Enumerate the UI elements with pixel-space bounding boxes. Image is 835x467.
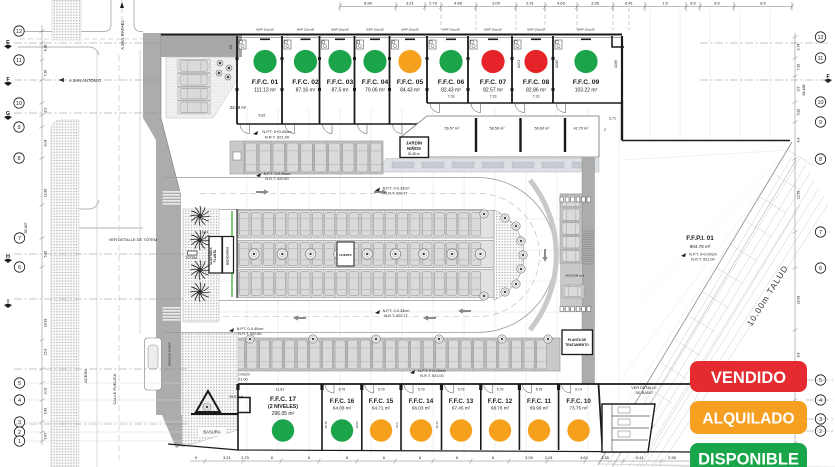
svg-text:F.F.C. 14: F.F.C. 14: [409, 398, 434, 405]
svg-text:15.3: 15.3: [44, 349, 48, 356]
svg-text:BAP 10cmØ: BAP 10cmØ: [485, 28, 503, 32]
svg-text:103.22 m²: 103.22 m²: [575, 88, 598, 94]
svg-text:N.P.T. 0-0.40cm: N.P.T. 0-0.40cm: [264, 172, 291, 176]
svg-text:111.13 m²: 111.13 m²: [254, 88, 276, 94]
svg-text:9: 9: [17, 125, 20, 131]
svg-text:3.21: 3.21: [406, 1, 415, 6]
svg-text:3.5: 3.5: [229, 45, 233, 50]
svg-text:5: 5: [819, 378, 822, 384]
svg-text:11: 11: [16, 58, 22, 64]
svg-text:73.75 m²: 73.75 m²: [570, 406, 589, 411]
svg-text:2.79: 2.79: [241, 455, 250, 460]
svg-text:10.91: 10.91: [517, 60, 521, 68]
svg-text:3.74: 3.74: [797, 44, 801, 51]
svg-text:N.R.T. 921.00: N.R.T. 921.00: [420, 374, 443, 378]
svg-text:DISPONIBLE: DISPONIBLE: [698, 451, 799, 467]
svg-text:VER DETALLE: VER DETALLE: [631, 386, 657, 390]
svg-text:6.04: 6.04: [44, 140, 48, 147]
svg-text:N.R.T. 921.00: N.R.T. 921.00: [265, 135, 290, 140]
svg-text:F.F.C. 09: F.F.C. 09: [573, 79, 600, 86]
svg-text:5.79: 5.79: [418, 388, 425, 392]
svg-text:10.78: 10.78: [324, 421, 328, 429]
svg-text:58.56 m²: 58.56 m²: [490, 127, 506, 131]
svg-text:F.F.C. 16: F.F.C. 16: [330, 398, 355, 405]
svg-text:79.06 m²: 79.06 m²: [365, 88, 385, 94]
svg-text:12.89: 12.89: [44, 189, 48, 198]
svg-text:1: 1: [18, 439, 21, 445]
svg-text:JARDÍN: JARDÍN: [406, 141, 422, 146]
svg-text:3.35: 3.35: [591, 1, 600, 6]
svg-text:(2 NIVELES): (2 NIVELES): [268, 404, 298, 410]
svg-text:11.33: 11.33: [435, 421, 439, 429]
svg-text:4.48: 4.48: [454, 1, 463, 6]
svg-text:7.26: 7.26: [44, 70, 48, 77]
svg-text:7.33: 7.33: [490, 95, 497, 99]
svg-text:BAP 10cmØ: BAP 10cmØ: [578, 28, 596, 32]
svg-text:BAP 10cmØ: BAP 10cmØ: [332, 28, 350, 32]
svg-text:F.F.C. 13: F.F.C. 13: [449, 398, 474, 405]
svg-text:3.09: 3.09: [525, 455, 534, 460]
svg-text:64.71 m²: 64.71 m²: [372, 406, 391, 411]
svg-text:2.91: 2.91: [545, 455, 554, 460]
svg-text:BAP 10cmØ: BAP 10cmØ: [367, 28, 385, 32]
svg-text:2: 2: [819, 429, 822, 435]
svg-text:6: 6: [819, 266, 822, 272]
svg-text:68.188: 68.188: [802, 85, 806, 96]
svg-text:N.P.T. 0-0.33cm: N.P.T. 0-0.33cm: [383, 187, 410, 191]
svg-text:7.26: 7.26: [797, 64, 801, 71]
svg-text:2: 2: [604, 128, 606, 132]
svg-text:F.F.C. 08: F.F.C. 08: [523, 79, 550, 86]
svg-text:N.R.T. 920.77: N.R.T. 920.77: [384, 314, 407, 318]
svg-text:BAP 10cmØ: BAP 10cmØ: [402, 28, 420, 32]
svg-text:42.70 m²: 42.70 m²: [574, 127, 590, 131]
svg-text:3.71: 3.71: [609, 117, 616, 121]
svg-text:6.41: 6.41: [625, 1, 634, 6]
svg-text:66.03 m²: 66.03 m²: [412, 406, 431, 411]
svg-text:58.387: 58.387: [24, 223, 28, 234]
svg-text:87.16 m²: 87.16 m²: [296, 88, 316, 94]
svg-text:1.5: 1.5: [662, 1, 668, 6]
svg-text:7.33: 7.33: [448, 95, 455, 99]
svg-text:6.8: 6.8: [797, 353, 801, 358]
svg-text:3.43: 3.43: [44, 408, 48, 415]
svg-text:F.F.C. 02: F.F.C. 02: [292, 79, 319, 86]
svg-text:VENDIDO: VENDIDO: [711, 369, 786, 387]
svg-text:82.57 m²: 82.57 m²: [483, 88, 503, 94]
svg-text:6.4: 6.4: [797, 138, 801, 143]
svg-text:F.F.C. 06: F.F.C. 06: [438, 79, 465, 86]
svg-text:BAP 10cmØ: BAP 10cmØ: [257, 28, 275, 32]
svg-text:F.F.C. 05: F.F.C. 05: [397, 79, 424, 86]
svg-text:64.08 m²: 64.08 m²: [333, 406, 352, 411]
svg-text:6.14: 6.14: [575, 388, 582, 392]
svg-text:TRATAMIENTO: TRATAMIENTO: [565, 343, 589, 347]
svg-text:N.R.T. 920.60: N.R.T. 920.60: [265, 177, 288, 181]
svg-text:5.79: 5.79: [536, 388, 543, 392]
svg-text:2: 2: [18, 430, 21, 436]
svg-text:8.96: 8.96: [364, 1, 373, 6]
svg-text:2.91: 2.91: [526, 1, 535, 6]
svg-text:ACERA: ACERA: [83, 369, 88, 383]
svg-text:82.43 m²: 82.43 m²: [441, 88, 461, 94]
svg-text:NIÑOS: NIÑOS: [407, 146, 421, 151]
svg-text:F.F.C. 12: F.F.C. 12: [488, 398, 513, 405]
svg-text:3: 3: [819, 417, 822, 423]
svg-text:N.P.T. 0-0.40cm: N.P.T. 0-0.40cm: [237, 327, 264, 331]
svg-text:8: 8: [819, 157, 822, 163]
svg-text:2.35: 2.35: [668, 455, 677, 460]
svg-text:BAP 10cmØ: BAP 10cmØ: [297, 28, 315, 32]
svg-text:5: 5: [18, 381, 21, 387]
svg-text:30.48 m²: 30.48 m²: [408, 152, 421, 156]
svg-text:56.60 m²: 56.60 m²: [535, 127, 551, 131]
svg-text:MEDIDORES: MEDIDORES: [226, 247, 230, 265]
svg-text:4: 4: [18, 398, 21, 404]
svg-text:PLANTA: PLANTA: [213, 249, 217, 262]
svg-text:N.P.T. 0-0.33cm: N.P.T. 0-0.33cm: [383, 309, 410, 313]
svg-text:8.5: 8.5: [690, 1, 696, 6]
svg-text:84.43 m²: 84.43 m²: [400, 88, 420, 94]
svg-text:3.09: 3.09: [492, 1, 501, 6]
svg-text:F.F.C. 04: F.F.C. 04: [362, 79, 389, 86]
svg-text:4: 4: [819, 398, 822, 404]
svg-text:68.78 m²: 68.78 m²: [491, 406, 510, 411]
svg-text:56.57 m²: 56.57 m²: [445, 127, 461, 131]
svg-text:5.81: 5.81: [259, 114, 266, 118]
svg-text:10: 10: [16, 101, 22, 107]
svg-text:3.35: 3.35: [601, 455, 610, 460]
svg-text:11: 11: [818, 56, 824, 62]
svg-text:11.81: 11.81: [276, 388, 284, 392]
svg-text:10.85: 10.85: [614, 60, 618, 68]
svg-text:F.F.C. 17: F.F.C. 17: [270, 396, 296, 403]
svg-text:2.79: 2.79: [429, 1, 438, 6]
svg-text:F.F.C. 10: F.F.C. 10: [566, 398, 591, 405]
svg-text:3.5: 3.5: [44, 108, 48, 113]
svg-text:N.P.T. 0+0.00cm: N.P.T. 0+0.00cm: [262, 129, 292, 134]
svg-text:89.99 m²: 89.99 m²: [530, 406, 549, 411]
svg-text:7: 7: [18, 236, 21, 242]
svg-text:10: 10: [817, 100, 823, 106]
svg-text:N.P.T. 0+0.00cm: N.P.T. 0+0.00cm: [418, 369, 446, 373]
svg-text:F.F.C. 01: F.F.C. 01: [252, 79, 279, 86]
svg-text:10.89: 10.89: [555, 60, 559, 68]
svg-text:5.82: 5.82: [797, 109, 801, 116]
svg-text:HUERTA: HUERTA: [339, 253, 352, 257]
svg-text:F.F.C. 03: F.F.C. 03: [327, 79, 354, 86]
svg-text:F.F.C. 11: F.F.C. 11: [527, 398, 552, 405]
svg-text:18.93: 18.93: [44, 319, 48, 328]
svg-text:F.F.C. 15: F.F.C. 15: [369, 398, 394, 405]
svg-text:10.84: 10.84: [355, 421, 359, 429]
svg-text:BASURA: BASURA: [203, 430, 220, 435]
svg-text:11.1: 11.1: [395, 422, 399, 428]
svg-text:904.78 m²: 904.78 m²: [690, 244, 711, 249]
svg-text:MASCOM sq ft: MASCOM sq ft: [566, 274, 585, 278]
svg-text:BAP 10cmØ: BAP 10cmØ: [443, 28, 461, 32]
svg-text:F.F.P.I. 01: F.F.P.I. 01: [686, 235, 714, 242]
svg-text:12.59: 12.59: [797, 191, 801, 200]
svg-text:CALLE PUBLICA: CALLE PUBLICA: [112, 373, 117, 404]
svg-text:4.63: 4.63: [557, 1, 566, 6]
svg-text:N.R.T. 921.00: N.R.T. 921.00: [691, 258, 714, 262]
svg-text:3.5: 3.5: [797, 87, 801, 92]
svg-text:BAHIA DE BUSES: BAHIA DE BUSES: [168, 342, 172, 365]
svg-text:BAP 10cmØ: BAP 10cmØ: [528, 28, 546, 32]
svg-text:9: 9: [819, 120, 822, 126]
svg-text:6: 6: [18, 265, 21, 271]
svg-text:N.P.T. 0+0.00cm: N.P.T. 0+0.00cm: [689, 253, 717, 257]
svg-text:67.45 m²: 67.45 m²: [452, 406, 471, 411]
svg-text:DE BAÑO: DE BAÑO: [635, 390, 652, 395]
svg-text:7.33: 7.33: [533, 95, 540, 99]
svg-text:82.86 m²: 82.86 m²: [526, 88, 546, 94]
svg-text:3.03: 3.03: [44, 388, 48, 395]
svg-text:VER DETALLE DE TÓTEM: VER DETALLE DE TÓTEM: [109, 237, 158, 242]
svg-text:8.5: 8.5: [760, 1, 766, 6]
svg-text:296.05 m²: 296.05 m²: [272, 411, 295, 417]
svg-text:ELÉCTRICA: ELÉCTRICA: [208, 247, 213, 265]
svg-text:5.79: 5.79: [339, 388, 346, 392]
svg-text:F.F.C. 07: F.F.C. 07: [480, 79, 507, 86]
svg-text:TÓTEM: TÓTEM: [185, 255, 197, 260]
svg-text:8: 8: [17, 156, 20, 162]
svg-text:33.89 m²: 33.89 m²: [230, 105, 247, 110]
svg-text:5.79: 5.79: [458, 388, 465, 392]
svg-text:N.R.T. 920.77: N.R.T. 920.77: [384, 192, 407, 196]
svg-text:PLANTA DE: PLANTA DE: [568, 338, 587, 342]
svg-text:5.79: 5.79: [497, 388, 504, 392]
svg-text:ALQUILADO: ALQUILADO: [702, 411, 794, 428]
svg-text:3.21: 3.21: [223, 455, 232, 460]
svg-text:87.5 m²: 87.5 m²: [332, 88, 349, 94]
svg-text:A SAN RAFAEL: A SAN RAFAEL: [120, 20, 125, 50]
svg-text:4.38: 4.38: [44, 45, 48, 52]
svg-text:18.93: 18.93: [797, 296, 801, 305]
svg-text:4.63: 4.63: [580, 455, 589, 460]
svg-text:3: 3: [18, 420, 21, 426]
svg-text:7: 7: [819, 230, 822, 236]
svg-text:12: 12: [16, 29, 22, 35]
svg-text:12: 12: [817, 35, 823, 41]
svg-text:3.67: 3.67: [44, 433, 48, 440]
svg-text:4.14: 4.14: [202, 230, 208, 234]
svg-text:5.79: 5.79: [378, 388, 385, 392]
svg-text:8.5: 8.5: [714, 1, 720, 6]
svg-text:6.41: 6.41: [636, 455, 645, 460]
